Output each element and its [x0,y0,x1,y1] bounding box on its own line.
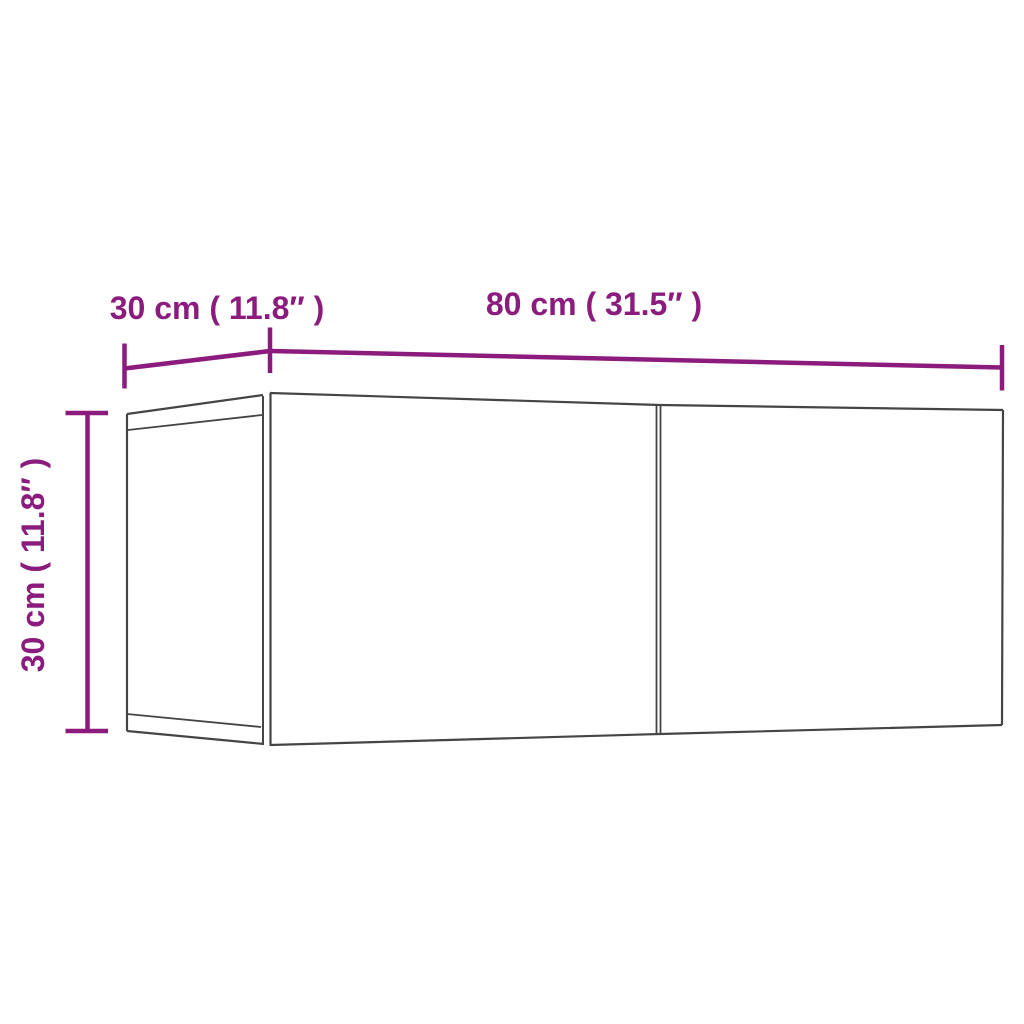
dimension-lines [66,328,1003,732]
width-dimension-label: 80 cm ( 31.5″ ) [486,286,702,322]
depth-dimension-line [125,351,271,369]
diagram-canvas: 30 cm ( 11.8″ ) 80 cm ( 31.5″ ) 30 cm ( … [0,0,1024,1024]
front-right-edge [1002,410,1003,725]
depth-dimension-label: 30 cm ( 11.8″ ) [110,290,325,326]
side-top-edge [127,395,263,414]
front-bottom-edge [271,725,1003,745]
height-dimension-label: 30 cm ( 11.8″ ) [15,458,51,673]
dimension-diagram: 30 cm ( 11.8″ ) 80 cm ( 31.5″ ) 30 cm ( … [0,0,1024,1024]
front-top-edge [270,393,1003,410]
side-bottom-edge [127,731,264,744]
dimension-labels: 30 cm ( 11.8″ ) 80 cm ( 31.5″ ) 30 cm ( … [15,286,702,672]
side-bottom-strip-line [127,714,261,727]
width-dimension-line [270,351,1002,368]
cabinet-drawing [127,393,1003,746]
side-top-strip-line [128,415,262,430]
